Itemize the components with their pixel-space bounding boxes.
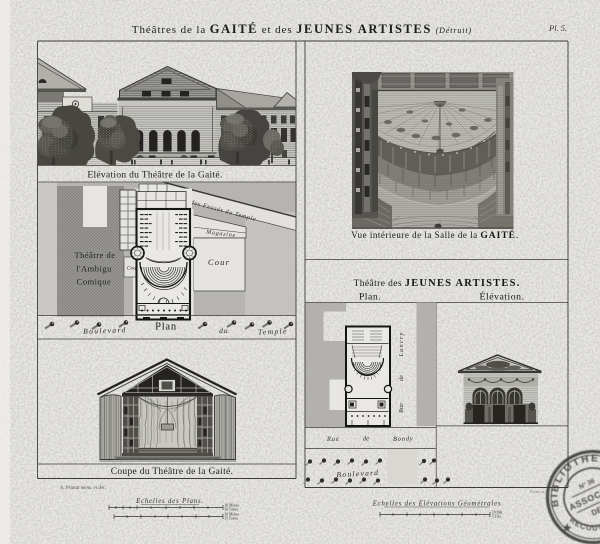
svg-text:Bondy: Bondy [393, 435, 414, 443]
svg-text:A. Prunat mens. et del.: A. Prunat mens. et del. [59, 486, 106, 491]
svg-text:Plan.: Plan. [359, 292, 381, 303]
svg-text:du: du [219, 326, 229, 335]
svg-text:Pierre sc.: Pierre sc. [529, 489, 546, 494]
svg-text:15 Toises: 15 Toises [225, 517, 239, 521]
svg-text:Rue: Rue [326, 436, 340, 443]
svg-text:5 Tois.: 5 Tois. [492, 515, 502, 519]
svg-text:l'Ambigu: l'Ambigu [76, 264, 112, 274]
svg-text:Coupe du Théâtre de la Gaité.: Coupe du Théâtre de la Gaité. [111, 467, 233, 477]
svg-text:Plan: Plan [155, 322, 177, 333]
svg-text:Temple: Temple [258, 326, 288, 336]
svg-text:Cour: Cour [208, 257, 230, 267]
svg-text:Echelles des Plans.: Echelles des Plans. [135, 498, 204, 505]
svg-text:Théâtres de la GAITÉ et des JE: Théâtres de la GAITÉ et des JEUNES ARTIS… [132, 22, 472, 36]
svg-text:Théâtre de: Théâtre de [74, 250, 115, 260]
svg-text:Vue intérieure de la Salle de: Vue intérieure de la Salle de la GAITÉ. [351, 229, 519, 241]
svg-text:Rue: Rue [398, 403, 405, 414]
svg-text:Echelles des Elévations Géomét: Echelles des Elévations Géométrales [372, 501, 502, 508]
svg-text:10 Toises: 10 Toises [225, 508, 239, 512]
svg-text:de: de [398, 375, 405, 381]
svg-text:Théâtre des JEUNES ARTISTES.: Théâtre des JEUNES ARTISTES. [354, 278, 521, 289]
svg-text:Comique: Comique [77, 277, 112, 287]
svg-text:Boulevard: Boulevard [83, 325, 127, 336]
svg-text:Pl. 5.: Pl. 5. [548, 23, 567, 33]
svg-text:Lancry: Lancry [398, 331, 405, 357]
svg-text:Elévation du Théâtre de la Gai: Elévation du Théâtre de la Gaité. [87, 171, 222, 181]
svg-text:de: de [363, 435, 369, 442]
svg-text:Élévation.: Élévation. [480, 291, 525, 303]
